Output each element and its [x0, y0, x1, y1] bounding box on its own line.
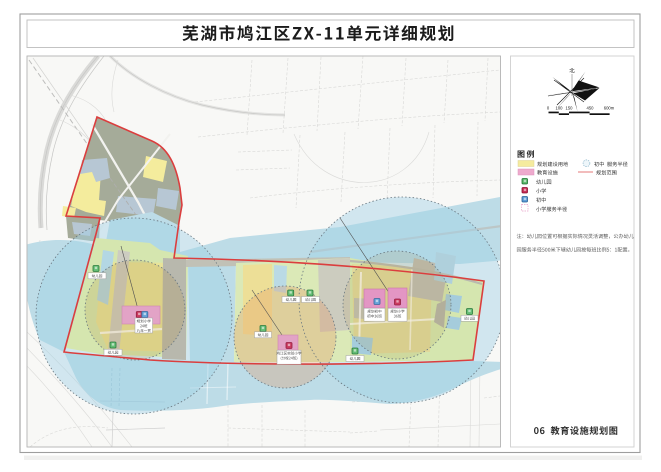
svg-text:150: 150 [566, 106, 574, 111]
svg-text:100: 100 [556, 106, 564, 111]
svg-text:450: 450 [587, 106, 595, 111]
svg-text:600m: 600m [604, 106, 615, 111]
